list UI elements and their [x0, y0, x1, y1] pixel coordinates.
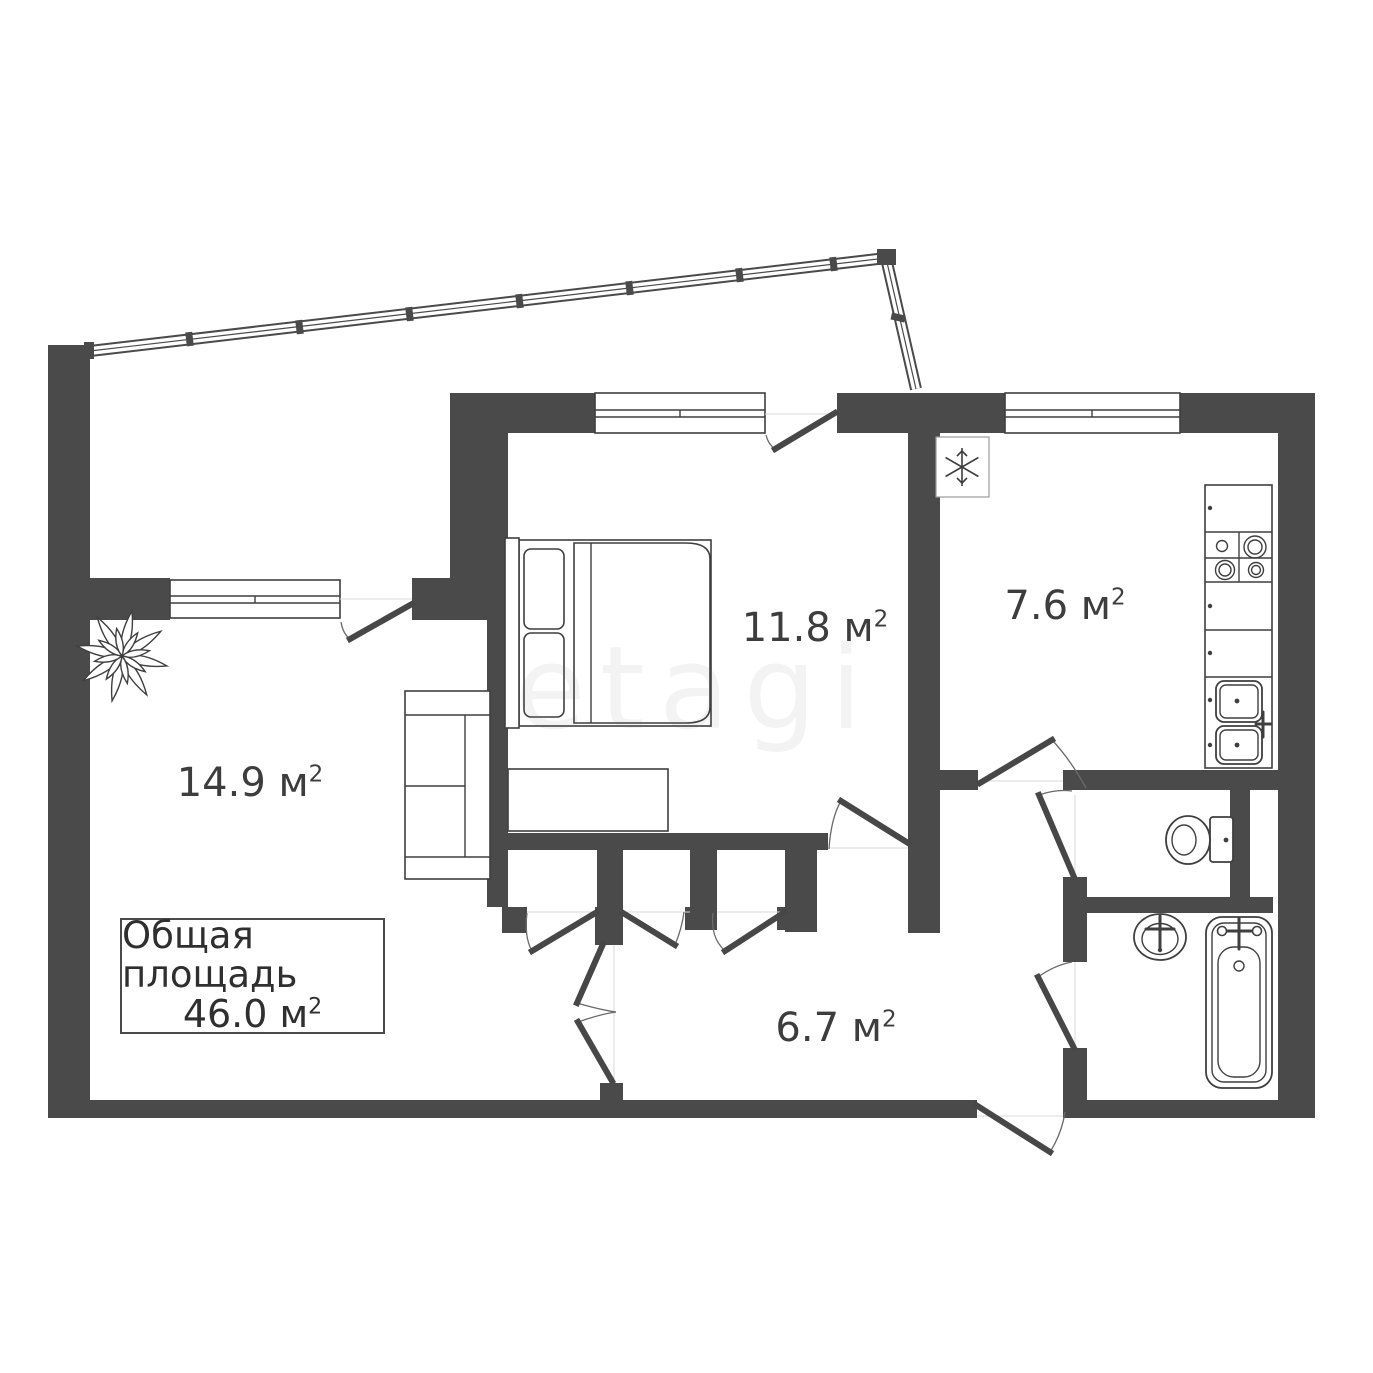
wash-basin-icon [1134, 914, 1186, 960]
closet-door-2 [623, 912, 684, 945]
total-area-box: Общая площадь 46.0 м2 [120, 918, 385, 1034]
room-area-value: 14.9 м [177, 760, 309, 806]
door-bedroom-balcony [766, 413, 835, 449]
sofa-icon [405, 691, 490, 879]
door-wc [1039, 791, 1074, 878]
total-area-number: 46.0 м [183, 992, 308, 1036]
closet-door-3 [713, 912, 786, 951]
floor-plan: 14.9 м2 11.8 м2 7.6 м2 6.7 м2 Общая площ… [0, 0, 1373, 1373]
room-label-hallway: 6.7 м2 [746, 1008, 926, 1048]
window-bedroom [595, 393, 765, 433]
sup: 2 [1111, 585, 1126, 611]
total-area-label: Общая площадь [122, 917, 383, 995]
kitchen-counter [1205, 485, 1272, 768]
door-bathroom [1038, 962, 1074, 1048]
window-living-room [170, 580, 340, 618]
window-kitchen [1005, 393, 1180, 433]
balcony-railing [84, 249, 916, 389]
sup: 2 [309, 762, 324, 788]
snowflake-fridge-icon [936, 437, 989, 497]
room-area-value: 7.6 м [1004, 583, 1111, 629]
closet-door-1 [526, 912, 597, 951]
door-bedroom [829, 801, 908, 849]
door-living-balcony [341, 604, 412, 639]
door-living-hall-double [577, 944, 616, 1081]
cabinet-icon [508, 769, 668, 831]
sup: 2 [308, 994, 322, 1019]
watermark: etagi [515, 622, 876, 756]
bathtub-icon [1206, 917, 1272, 1088]
door-entrance [976, 1105, 1065, 1152]
room-area-value: 6.7 м [775, 1005, 882, 1051]
room-label-living-room: 14.9 м2 [160, 763, 340, 803]
kitchen-double-sink-icon [1216, 681, 1271, 764]
room-label-kitchen: 7.6 м2 [975, 586, 1155, 626]
sup: 2 [882, 1007, 897, 1033]
total-area-value: 46.0 м2 [183, 995, 322, 1035]
toilet-icon [1166, 816, 1233, 864]
